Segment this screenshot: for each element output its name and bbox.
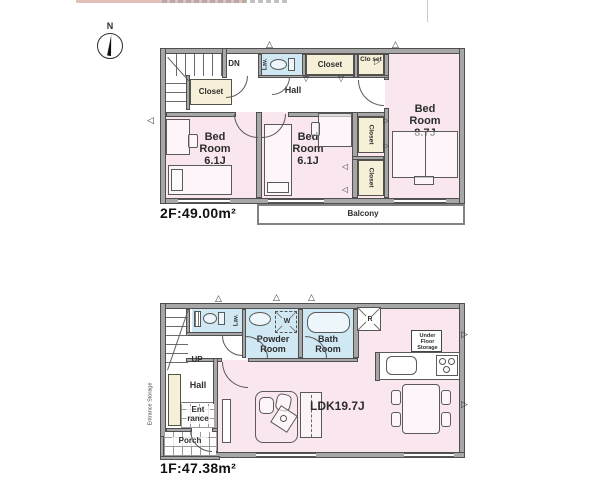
- vent-marker-icon: △: [392, 41, 399, 50]
- pillow-icon: [171, 169, 183, 191]
- desk-icon: [166, 119, 190, 155]
- 2f-closet-a: Closet: [358, 117, 384, 153]
- under-floor-storage-label: Under Floor Storage: [413, 333, 442, 351]
- washer-box-icon: W: [275, 311, 297, 333]
- bed-divider-line: [425, 132, 426, 177]
- kitchen-sink-icon: [386, 356, 417, 375]
- 1f-area-label: 1F:47.38m²: [160, 461, 280, 476]
- burner-icon: [439, 358, 446, 365]
- stairs-down-label: DN: [222, 60, 246, 69]
- window: [268, 199, 324, 203]
- vent-marker-icon: ▷: [461, 401, 468, 410]
- dining-table-icon: [402, 384, 440, 434]
- double-bed-icon: [392, 131, 458, 178]
- vent-marker-icon: △: [266, 41, 273, 50]
- 1f-lav-label: Lav.: [233, 314, 240, 326]
- 2f-hall-closet-label: Closet: [306, 61, 354, 70]
- lav-shelf-icon: [194, 311, 201, 327]
- sink-icon: [249, 312, 271, 326]
- entrance-step-line: [181, 402, 213, 403]
- 2f-lav-label: Lav.: [262, 59, 269, 71]
- balcony-label: Balcony: [335, 210, 391, 219]
- chair-icon: [441, 412, 451, 427]
- window: [178, 199, 230, 203]
- toilet-icon: [270, 59, 287, 70]
- wall: [248, 358, 358, 362]
- burner-icon: [448, 358, 455, 365]
- chair-icon: [391, 412, 401, 427]
- 2f-closet-b: Closet: [358, 160, 384, 196]
- wall: [160, 303, 465, 309]
- bed-foot-icon: [414, 176, 434, 185]
- sofa-cushion-icon: [259, 397, 274, 414]
- closet-door-marker-icon: ◁: [342, 186, 348, 194]
- bathtub-icon: [307, 312, 350, 333]
- closet-door-marker-icon: ▽: [338, 75, 344, 83]
- table-decor-icon: [280, 415, 287, 422]
- floor-plan-page: { "colors": { "wall": "#a7a7a7", "wall_e…: [0, 0, 600, 504]
- staircase-down: [166, 76, 186, 110]
- window: [404, 453, 454, 457]
- 1f-lav-label-holder: Lav.: [232, 310, 241, 330]
- wall: [298, 309, 303, 358]
- entrance-label: Ent rance: [186, 406, 210, 424]
- 2f-closet-a-label: Closet: [367, 125, 374, 145]
- closet-door-marker-icon: ◁: [342, 163, 348, 171]
- entrance-storage-label: Entrance Storage: [147, 383, 153, 426]
- toilet-tank-icon: [288, 58, 295, 71]
- vent-marker-icon: ◁: [147, 117, 154, 126]
- chair-icon: [441, 390, 451, 405]
- closet-door-marker-icon: ▷: [374, 58, 380, 66]
- vent-marker-icon: △: [273, 294, 280, 303]
- clipped-header-divider: [427, 0, 428, 22]
- window: [394, 199, 446, 203]
- desk-icon: [318, 113, 352, 147]
- window: [256, 453, 316, 457]
- clipped-header-text: [162, 0, 288, 3]
- ldk-label: LDK19.7J: [310, 400, 380, 413]
- 1f-hall-label: Hall: [184, 381, 212, 391]
- 2f-lav-label-holder: Lav.: [261, 55, 270, 74]
- wall: [358, 75, 389, 78]
- chair-icon: [311, 122, 320, 136]
- entrance-storage-label-holder: Entrance Storage: [143, 376, 157, 432]
- pillow-icon: [267, 182, 289, 193]
- toilet-tank-icon: [218, 312, 225, 325]
- vent-marker-icon: △: [308, 294, 315, 303]
- wall: [459, 48, 465, 204]
- under-floor-storage-box: Under Floor Storage: [411, 330, 442, 352]
- tv-board-icon: [222, 399, 231, 443]
- vent-marker-icon: ▷: [461, 331, 468, 340]
- compass-north-label: N: [101, 22, 119, 32]
- wall: [166, 112, 236, 117]
- wall: [459, 303, 465, 458]
- wall: [306, 75, 354, 78]
- vent-marker-icon: △: [215, 295, 222, 304]
- chair-icon: [391, 390, 401, 405]
- closet-door-marker-icon: ▽: [303, 75, 309, 83]
- burner-icon: [443, 366, 450, 373]
- closet-door-marker-icon: ▷: [383, 142, 389, 150]
- refrigerator-label: R: [366, 316, 374, 324]
- 2f-closet-b-label: Closet: [367, 168, 374, 188]
- toilet-icon: [203, 313, 217, 324]
- washer-label: W: [282, 318, 292, 326]
- 2f-area-label: 2F:49.00m²: [160, 206, 280, 221]
- bedroom3-name: Bed Room: [398, 103, 452, 127]
- stairs-up-label: UP: [188, 356, 206, 365]
- chair-icon: [188, 134, 198, 148]
- refrigerator-box-icon: R: [357, 307, 381, 331]
- closet-door-marker-icon: ▷: [383, 117, 389, 125]
- entrance-storage-closet: [168, 374, 181, 426]
